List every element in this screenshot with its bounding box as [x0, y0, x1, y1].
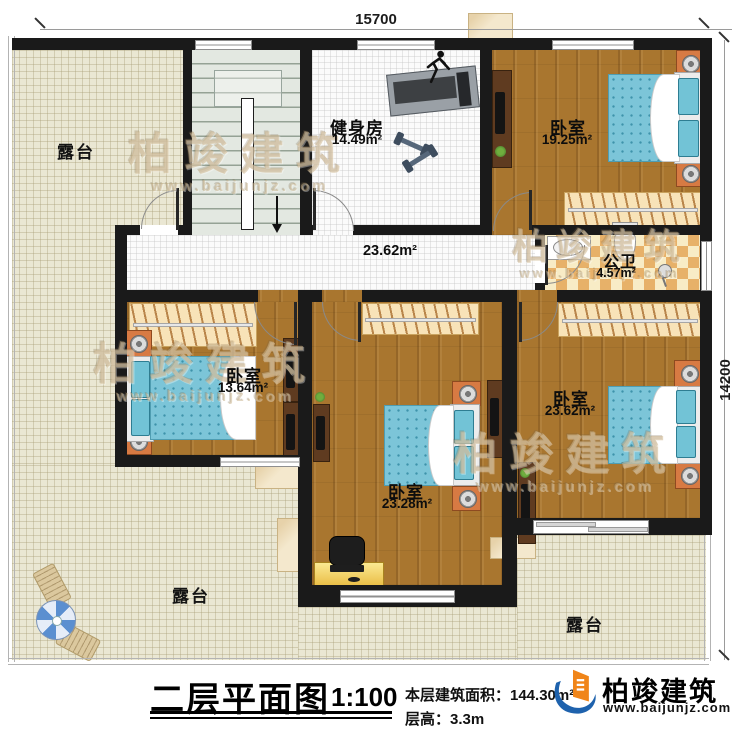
door-leaf-terrace: [176, 188, 179, 230]
door-leaf-gym: [313, 188, 316, 230]
door-gap-bedroom-right: [517, 290, 557, 302]
bed-pillow: [678, 78, 699, 115]
lamp-icon: [681, 467, 699, 485]
dimension-height-label: 14200: [717, 352, 733, 408]
nightstand: [124, 330, 152, 357]
door-leaf-bedroom-tr: [529, 190, 532, 230]
nightstand: [674, 360, 703, 387]
bed-blanket: [650, 386, 678, 464]
wall-bedroom-left-east: [298, 290, 312, 607]
stair-direction-arrow-icon: [272, 224, 282, 233]
bed-pillow: [676, 390, 696, 424]
lamp-icon: [459, 490, 477, 508]
plant-icon: [315, 392, 325, 402]
terrace-railing-bottom: [8, 658, 709, 665]
door-leaf-bathroom: [545, 245, 548, 285]
patio-umbrella-icon: [36, 600, 76, 640]
lamp-icon: [681, 365, 699, 383]
window-bedroom-left-south: [220, 457, 300, 467]
terrace-bottom-center: [298, 607, 517, 660]
room-area-bedroom-center: 23.28m²: [382, 496, 432, 511]
lamp-icon: [130, 335, 148, 353]
room-area-gym: 14.49m²: [332, 132, 382, 147]
wall-stairwell-west: [183, 38, 192, 225]
stair-direction-line: [276, 196, 278, 226]
closet-rail: [562, 319, 698, 323]
window-bathroom-east: [701, 241, 712, 291]
keyboard-icon: [330, 565, 364, 572]
bed-pillow: [131, 361, 150, 398]
computer-monitor-icon: [495, 92, 505, 134]
dimension-tick: [34, 17, 45, 28]
computer-monitor-icon: [490, 398, 499, 436]
plant-icon: [520, 468, 530, 478]
terrace-railing-right: [704, 535, 711, 661]
dimension-line-right: [724, 40, 725, 660]
wall-terrace-south-b: [178, 225, 192, 235]
bed-pillow: [454, 446, 474, 480]
plant-icon: [495, 146, 506, 157]
door-gap-bedroom-left: [258, 290, 298, 302]
bed-blanket: [428, 405, 454, 486]
door-leaf-bedroom-center: [358, 302, 361, 342]
closet: [564, 192, 702, 226]
room-area-bathroom: 4.57m²: [596, 266, 636, 280]
runner-icon: [417, 45, 460, 88]
brand-website: www.baijunjz.com: [603, 700, 731, 715]
terrace-label-bottom-right: 露台: [566, 611, 604, 636]
closet: [558, 303, 702, 337]
door-leaf-bedroom-left: [294, 302, 297, 345]
wall-hall-north-a: [300, 225, 313, 235]
bed-pillow: [131, 399, 150, 436]
office-chair-icon: [329, 536, 365, 566]
title-underline: [150, 711, 392, 714]
wall-hall-south-a: [115, 290, 258, 302]
title-underline: [150, 717, 392, 719]
stair-rail: [241, 98, 254, 230]
bed-pillow: [454, 410, 474, 444]
computer-monitor-icon: [521, 484, 530, 522]
bed-pillow: [678, 120, 699, 157]
window-bedroom-center-south: [340, 590, 455, 603]
window-stairwell-north: [195, 40, 252, 50]
lamp-icon: [682, 55, 700, 73]
mouse-icon: [348, 577, 360, 582]
floor-height-text: 层高：3.3m: [405, 708, 484, 729]
wall-bedroom-center-east: [502, 290, 517, 607]
planter-box: [468, 13, 513, 41]
computer-monitor-icon: [316, 416, 325, 450]
dimension-line-top: [40, 29, 732, 30]
nightstand: [452, 381, 481, 406]
wall-gym-east: [480, 38, 492, 225]
closet: [362, 303, 479, 335]
hallway-floor: [124, 235, 545, 290]
bed-pillow: [676, 426, 696, 458]
dimension-tick: [698, 17, 709, 28]
bed-blanket: [650, 74, 680, 162]
brand-logo-icon: [545, 667, 601, 721]
terrace-bottom-right: [517, 535, 706, 660]
room-area-hallway: 23.62m²: [363, 243, 417, 259]
floor-plan: 柏竣建筑 www.baijunjz.com 柏竣建筑 www.baijunjz.…: [0, 0, 750, 730]
door-leaf-bedroom-right: [519, 302, 522, 342]
nightstand: [452, 486, 481, 511]
window-gym-north: [357, 40, 435, 50]
door-gap-bedroom-center: [322, 290, 362, 302]
drawing-scale: 1:100: [331, 682, 398, 713]
door-gap-bathroom: [535, 247, 545, 283]
lamp-icon: [682, 165, 700, 183]
nightstand: [675, 462, 703, 489]
room-area-bedroom-right: 23.62m²: [545, 403, 595, 418]
sliding-door-panel: [588, 527, 648, 532]
dimension-width-label: 15700: [336, 11, 416, 28]
closet-rail: [133, 323, 254, 327]
room-area-bedroom-tr: 19.25m²: [542, 132, 592, 147]
closet-rail: [568, 208, 699, 212]
computer-monitor-icon: [286, 414, 295, 450]
room-area-bedroom-left: 13.64m²: [218, 380, 268, 395]
wall-stairwell-east: [300, 38, 312, 225]
wall-hall-south-d: [557, 290, 712, 302]
terrace-label-top-left: 露台: [57, 138, 95, 163]
wall-bathroom-west-top: [535, 235, 545, 247]
wall-hall-north-c: [532, 225, 712, 235]
wall-terrace-south-a: [115, 225, 140, 235]
sliding-door-panel: [536, 522, 596, 527]
wall-hall-south-c: [362, 290, 517, 302]
computer-monitor-icon: [286, 352, 295, 388]
terrace-left-column: [12, 225, 115, 465]
wall-hall-north-b: [353, 225, 492, 235]
window-bedroom-tr-north: [552, 40, 634, 50]
terrace-label-bottom-left: 露台: [172, 582, 210, 607]
lamp-icon: [459, 385, 477, 403]
terrace-railing-left: [8, 36, 15, 662]
sliding-door-bedroom-right: [533, 520, 649, 534]
closet-rail: [365, 318, 475, 322]
umbrella-hub: [52, 616, 62, 626]
wall-west-mid: [115, 235, 127, 467]
